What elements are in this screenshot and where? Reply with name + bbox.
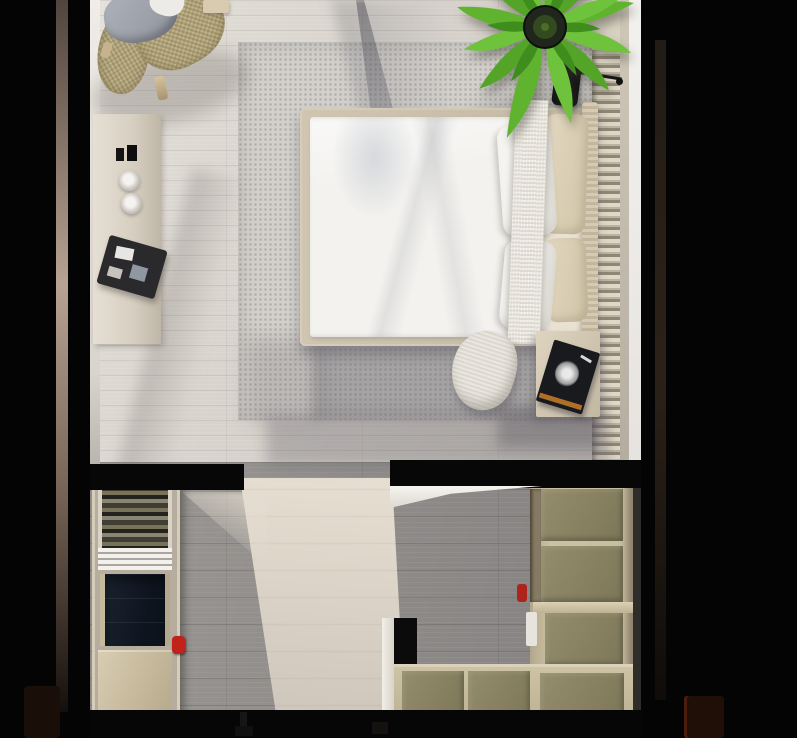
partition-wall-right — [390, 460, 641, 488]
folded-clothes-shelf — [98, 548, 172, 570]
olive-door-panel-3 — [545, 613, 623, 666]
decor-jar-2 — [121, 193, 142, 214]
red-accent-object — [172, 636, 185, 654]
olive-door-panel-2 — [541, 546, 623, 602]
closet-right-wall-shade — [633, 488, 641, 714]
book-cover-graphic — [552, 358, 583, 390]
white-shelf-object — [526, 612, 537, 646]
side-stool-top — [203, 0, 229, 13]
black-candle-holder-2 — [127, 145, 137, 161]
left-wall-edge-reflection — [56, 0, 68, 712]
door-hardware-2 — [372, 722, 388, 734]
bottom-right-dark-object — [684, 696, 724, 738]
chair-leg-2 — [154, 75, 169, 101]
red-accent-object-2 — [517, 584, 527, 602]
partition-wall-left — [88, 464, 244, 490]
olive-column-divider — [533, 602, 633, 613]
navy-drawer-section — [100, 574, 170, 646]
tray-book-small — [107, 266, 123, 279]
left-black-margin — [0, 0, 90, 738]
tray-book-gray — [129, 264, 148, 282]
door-hardware — [240, 712, 247, 730]
black-candle-holder — [116, 148, 124, 161]
olive-door-panel-1 — [541, 489, 623, 541]
palm-plant — [440, 0, 652, 172]
render-canvas — [0, 0, 797, 738]
olive-column-side-gap — [530, 489, 541, 602]
book-cover-mark — [580, 355, 592, 364]
decor-jar — [119, 170, 140, 191]
bottom-left-dark-object — [24, 686, 60, 738]
black-floor-box — [394, 618, 417, 664]
clothes-rack-section — [98, 486, 172, 548]
tray-book-white — [114, 246, 134, 261]
cabinet-lit-side-face — [382, 618, 394, 724]
right-wall-edge-reflection — [655, 40, 666, 700]
wood-cabinet-section — [98, 650, 172, 712]
bottom-wall — [88, 710, 641, 738]
rattan-lounge-chair — [96, 0, 236, 110]
